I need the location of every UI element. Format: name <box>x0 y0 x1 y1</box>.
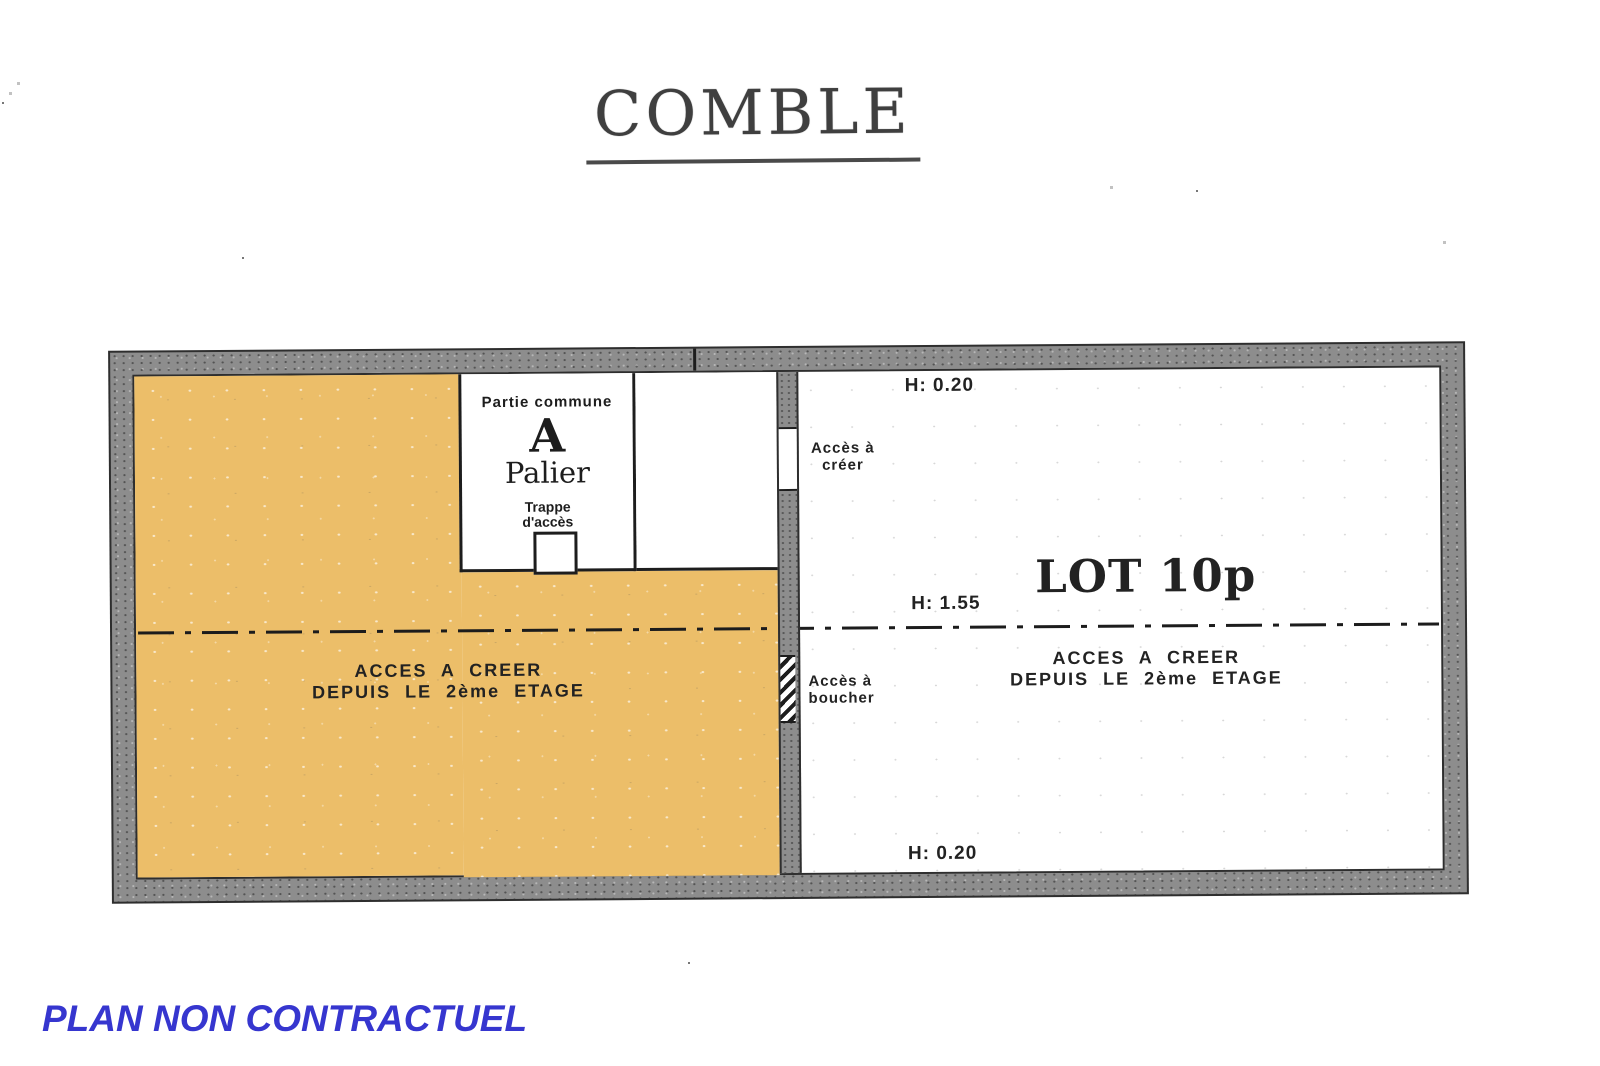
common-area-name: Palier <box>462 458 633 488</box>
access-note-left-line1: ACCES A CREER <box>292 659 604 682</box>
scanned-floor-plan-page: COMBLE Partie commune A Palier Trappe d'… <box>0 0 1600 1066</box>
scan-speck <box>1443 241 1446 244</box>
access-create-label: Accès à créer <box>787 439 899 474</box>
opening-to-block-hatch <box>780 655 795 723</box>
plan-interior: Partie commune A Palier Trappe d'accès H… <box>132 365 1444 879</box>
height-label-bottom: H: 0.20 <box>878 842 1008 865</box>
access-note-right-line2: DEPUIS LE 2ème ETAGE <box>981 668 1311 692</box>
access-create-line2: créer <box>787 456 899 474</box>
access-block-label: Accès à boucher <box>804 672 914 707</box>
height-label-top: H: 0.20 <box>874 374 1004 397</box>
scan-speck <box>9 92 12 95</box>
access-block-line2: boucher <box>808 689 914 707</box>
access-note-right: ACCES A CREER DEPUIS LE 2ème ETAGE <box>981 646 1311 691</box>
trap-label-line2: d'accès <box>462 514 633 531</box>
scan-speck <box>17 82 20 85</box>
scan-speck <box>1196 190 1198 192</box>
access-block-line1: Accès à <box>808 672 914 690</box>
access-create-line1: Accès à <box>787 439 899 457</box>
floor-plan: Partie commune A Palier Trappe d'accès H… <box>110 343 1467 901</box>
unlabeled-room <box>635 372 777 571</box>
scan-speck <box>2 102 4 104</box>
highlighted-zone-lower <box>462 570 780 877</box>
access-hatch-symbol <box>533 531 577 574</box>
access-note-left: ACCES A CREER DEPUIS LE 2ème ETAGE <box>292 659 604 704</box>
height-label-middle: H: 1.55 <box>891 593 1001 616</box>
access-note-right-line1: ACCES A CREER <box>981 646 1311 670</box>
access-note-left-line2: DEPUIS LE 2ème ETAGE <box>292 681 604 704</box>
common-area-letter: A <box>462 412 633 459</box>
lot-label: LOT 10p <box>1026 549 1266 604</box>
scan-speck <box>242 257 244 259</box>
scan-speck <box>688 962 690 964</box>
disclaimer-text: PLAN NON CONTRACTUEL <box>42 998 527 1040</box>
wall-joint-mark <box>693 349 696 371</box>
page-title-text: COMBLE <box>586 75 920 165</box>
highlighted-zone-left <box>134 374 463 877</box>
page-title: COMBLE <box>586 75 920 165</box>
scan-speck <box>1110 186 1113 189</box>
